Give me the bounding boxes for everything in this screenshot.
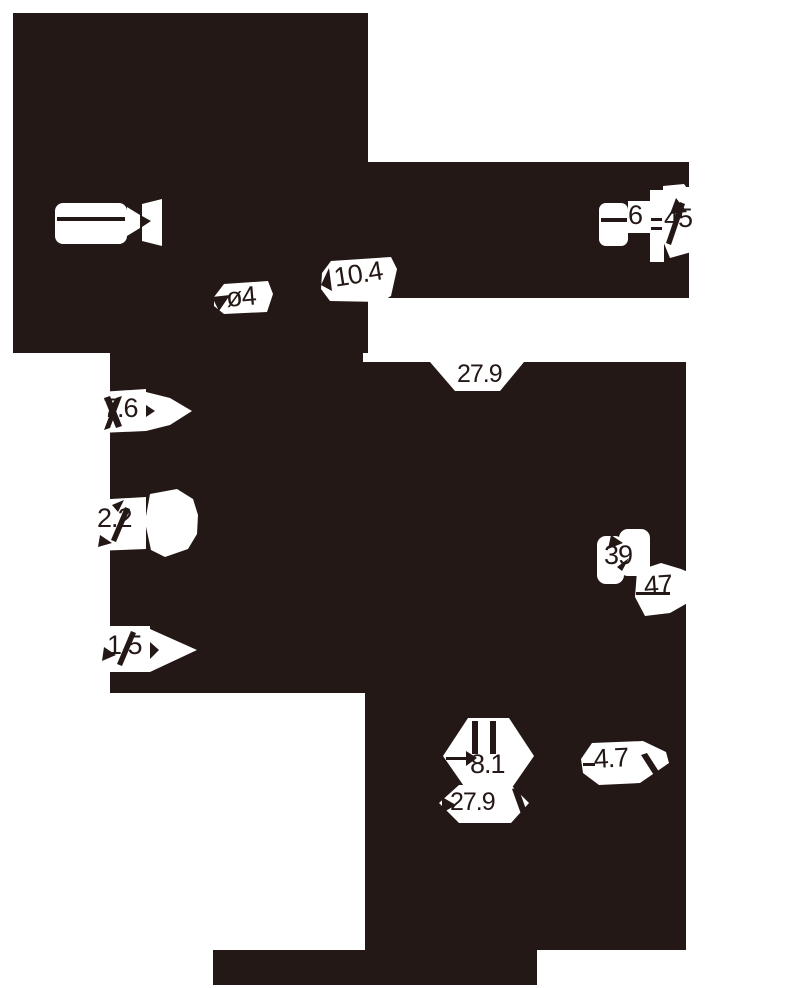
- dim-label-27-9-bottom: 27.9: [450, 790, 495, 815]
- dim-label-47: 47: [643, 571, 673, 600]
- dimension-line: [446, 757, 466, 760]
- drawing-silhouette: [0, 0, 800, 988]
- lens-body: [55, 203, 127, 244]
- dim-label-1-5: 1.5: [107, 632, 142, 659]
- lens-profile-shape: [55, 199, 162, 246]
- dim-label-6: 6: [628, 202, 642, 229]
- tick: [651, 227, 662, 230]
- dim-label-4-7: 4.7: [593, 744, 629, 773]
- tick: [651, 218, 662, 221]
- dim-label-7-6: 7.6: [103, 395, 138, 422]
- dim-label-8-1: 8.1: [470, 751, 505, 778]
- dim-label-45: 45: [664, 205, 692, 232]
- lens-split-line: [57, 217, 125, 221]
- dimension-drawing: ø4 10.4 6 45 27.9 7.6 2.2 1.5 39 47 8.1 …: [0, 0, 800, 988]
- dim-label-27-9-top: 27.9: [457, 362, 502, 387]
- dim-label-2-2: 2.2: [97, 505, 132, 532]
- dim-label-diameter: ø4: [225, 282, 257, 311]
- dimension-line: [601, 218, 627, 222]
- dim-label-39: 39: [604, 542, 632, 569]
- extension-strip: [650, 190, 664, 262]
